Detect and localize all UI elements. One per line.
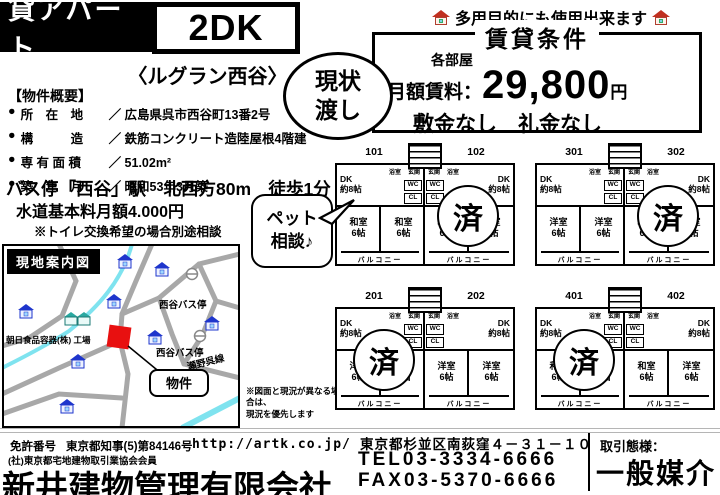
- balcony-label: バルコニー: [341, 251, 419, 264]
- wc-label: WC: [626, 324, 644, 335]
- overview-row-structure: ● 構 造 ／ 鉄筋コンクリート造陸屋根4階建: [8, 128, 348, 147]
- unit-number: 402: [651, 290, 701, 302]
- footer-vertical-divider: [588, 433, 590, 491]
- deposit-terms: 敷金なし 礼金なし: [413, 108, 602, 138]
- deal-type-value: 一般媒介: [596, 452, 716, 492]
- rent-value: 29,800: [482, 63, 610, 108]
- rental-conditions-box: 賃貸条件 各部屋 月額賃料： 29,800 円 敷金なし 礼金なし: [372, 32, 702, 133]
- map-label-bus-stop-2: 西谷バス停: [156, 347, 204, 359]
- unit-number: 101: [349, 146, 399, 158]
- bullet-icon: ●: [8, 152, 16, 171]
- room-label: 洋室6帖: [470, 361, 513, 383]
- unit-number: 302: [651, 146, 701, 158]
- room-label: 洋室6帖: [537, 217, 580, 239]
- overview-row-area: ● 専 有 面 積 ／ 51.02m²: [8, 152, 348, 171]
- monthly-rent: 月額賃料： 29,800 円: [387, 63, 627, 108]
- bath-label: 浴室: [647, 311, 659, 320]
- closet-label: CL: [626, 337, 644, 348]
- license-number: 免許番号東京都知事(5)第84146号: [10, 438, 193, 454]
- overview-title: 【物件概要】: [8, 86, 92, 106]
- house-icon: [652, 10, 670, 25]
- map-house: [147, 330, 163, 344]
- property-name: 〈ルグラン西谷〉: [100, 60, 315, 89]
- map-house: [204, 316, 220, 330]
- layout-type-badge: 2DK: [152, 2, 300, 54]
- bullet-icon: ●: [8, 104, 16, 123]
- conditions-title: 賃貸条件: [475, 20, 599, 54]
- stairs: [408, 287, 442, 313]
- wc-label: WC: [604, 324, 622, 335]
- bath-label: 浴室: [589, 311, 601, 320]
- floorplan-group-401-402: 401 402 DK 約8帖 浴室 玄関 WC CL 和室6帖 和室6帖 バルコ…: [535, 287, 715, 417]
- dk-label: DK 約8帖: [540, 175, 562, 195]
- bubble-pointer: [318, 196, 358, 228]
- unit-number: 301: [549, 146, 599, 158]
- balcony-label: バルコニー: [541, 251, 619, 264]
- unit-number: 401: [549, 290, 599, 302]
- toilet-note: ※トイレ交換希望の場合別途相談: [34, 221, 222, 240]
- balcony-label: バルコニー: [341, 395, 419, 408]
- bath-label: 浴室: [589, 167, 601, 176]
- dk-label: DK 約8帖: [340, 175, 362, 195]
- sold-badge: 済: [637, 185, 699, 247]
- floorplan-group-201-202: 201 202 DK 約8帖 浴室 玄関 WC CL 洋室6帖 洋室6帖 バルコ…: [335, 287, 515, 417]
- stairs: [608, 143, 642, 169]
- closet-label: CL: [604, 193, 622, 204]
- map-label-bus-stop-1: 西谷バス停: [159, 299, 207, 311]
- balcony-label: バルコニー: [629, 395, 709, 408]
- room-label: 洋室6帖: [425, 361, 468, 383]
- dk-label: DK 約8帖: [488, 175, 510, 195]
- rental-flyer: 貸アパート 2DK 〈ルグラン西谷〉 多用目的にも使用出来ます 賃貸条件 各部屋…: [0, 0, 720, 495]
- fax-number: FAX03-5370-6666: [358, 470, 558, 492]
- license-label: 免許番号: [10, 441, 56, 453]
- floorplan-box: DK 約8帖 浴室 玄関 WC CL 洋室6帖 洋室6帖 バルコニー DK 約8…: [335, 307, 515, 410]
- unit-number: 202: [451, 290, 501, 302]
- bullet-icon: ●: [8, 128, 16, 147]
- wc-label: WC: [626, 180, 644, 191]
- sold-badge: 済: [353, 329, 415, 391]
- dk-label: DK 約8帖: [488, 319, 510, 339]
- sold-badge: 済: [553, 329, 615, 391]
- map-title: 現地案内図: [7, 249, 100, 274]
- floorplan-box: DK 約8帖 浴室 玄関 WC CL 和室6帖 和室6帖 バルコニー DK 約8…: [535, 307, 715, 410]
- floorplan-group-301-302: 301 302 DK 約8帖 浴室 玄関 WC CL 洋室6帖 洋室6帖 バルコ…: [535, 143, 715, 273]
- floorplan-note: ※図面と現況が異なる場合は、 現況を優先します: [246, 386, 342, 420]
- sold-badge: 済: [437, 185, 499, 247]
- as-is-badge: 現状 渡し: [283, 52, 393, 140]
- wc-label: WC: [404, 180, 422, 191]
- row-value: ／ 鉄筋コンクリート造陸屋根4階建: [109, 128, 307, 147]
- property-marker: [107, 325, 132, 350]
- room-label: 洋室6帖: [582, 217, 625, 239]
- floorplan-unit: DK 約8帖 浴室 玄関 WC CL 洋室6帖 洋室6帖 バルコニー: [537, 165, 625, 264]
- map-house: [117, 254, 133, 268]
- dk-label: DK 約8帖: [688, 319, 710, 339]
- wc-label: WC: [404, 324, 422, 335]
- map-label-property: 物件: [166, 376, 192, 391]
- bath-label: 浴室: [447, 167, 459, 176]
- row-label: 所 在 地: [21, 104, 109, 123]
- row-label: 構 造: [21, 128, 109, 147]
- row-value: ／ 広島県呉市西谷町13番2号: [109, 104, 271, 123]
- bath-label: 浴室: [647, 167, 659, 176]
- wc-label: WC: [604, 180, 622, 191]
- unit-number: 102: [451, 146, 501, 158]
- bath-label: 浴室: [389, 167, 401, 176]
- map-house: [18, 304, 34, 318]
- dk-label: DK 約8帖: [688, 175, 710, 195]
- floorplan-unit: DK 約8帖 浴室 玄関 WC CL 洋室6帖 洋室6帖 バルコニー: [425, 309, 513, 408]
- water-fee: 水道基本料月額4.000円: [16, 198, 184, 222]
- row-label: 専 有 面 積: [21, 152, 109, 171]
- stairs: [408, 143, 442, 169]
- category-banner: 貸アパート: [0, 2, 152, 52]
- dk-label: DK 約8帖: [340, 319, 362, 339]
- map-house: [154, 262, 170, 276]
- phone-number: TEL03-3334-6666: [358, 449, 557, 471]
- floorplan-group-101-102: 101 102 DK 約8帖 浴室 玄関 WC CL 和室6帖 和室6帖 バルコ…: [335, 143, 515, 273]
- house-icon: [432, 10, 450, 25]
- license-value: 東京都知事(5)第84146号: [66, 441, 193, 453]
- balcony-label: バルコニー: [429, 395, 509, 408]
- map-label-factory: 朝日食品容器(株) 工場: [6, 335, 91, 345]
- rent-label: 月額賃料：: [387, 77, 482, 104]
- balcony-label: バルコニー: [429, 251, 509, 264]
- room-label: 和室6帖: [382, 217, 425, 239]
- unit-number: 201: [349, 290, 399, 302]
- bath-label: 浴室: [389, 311, 401, 320]
- room-label: 和室6帖: [625, 361, 668, 383]
- balcony-label: バルコニー: [541, 395, 619, 408]
- company-url[interactable]: http://artk.co.jp/: [192, 437, 351, 452]
- floorplan-box: DK 約8帖 浴室 玄関 WC CL 洋室6帖 洋室6帖 バルコニー DK 約8…: [535, 163, 715, 266]
- map-house: [59, 399, 75, 413]
- row-value: ／ 51.02m²: [109, 152, 172, 171]
- company-name: 新井建物管理有限会社: [2, 461, 332, 495]
- dk-label: DK 約8帖: [540, 319, 562, 339]
- rent-unit: 円: [610, 78, 627, 103]
- wc-label: WC: [426, 180, 444, 191]
- closet-label: CL: [404, 193, 422, 204]
- stairs: [608, 287, 642, 313]
- location-map: 現地案内図: [2, 244, 240, 428]
- map-house: [106, 294, 122, 308]
- floorplan-box: DK 約8帖 浴室 玄関 WC CL 和室6帖 和室6帖 バルコニー DK 約8…: [335, 163, 515, 266]
- closet-label: CL: [426, 337, 444, 348]
- floorplan-unit: DK 約8帖 浴室 玄関 WC CL 和室6帖 洋室6帖 バルコニー: [625, 309, 713, 408]
- room-label: 洋室6帖: [670, 361, 713, 383]
- wc-label: WC: [426, 324, 444, 335]
- balcony-label: バルコニー: [629, 251, 709, 264]
- bath-label: 浴室: [447, 311, 459, 320]
